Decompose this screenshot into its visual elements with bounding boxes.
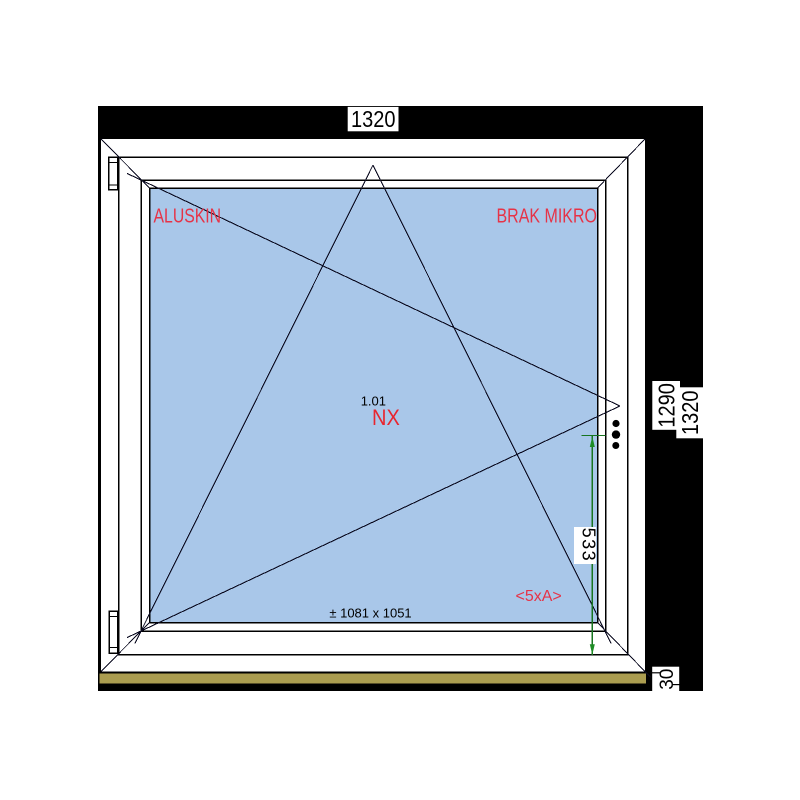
svg-text:1320: 1320 [677, 391, 704, 436]
svg-text:<5xA>: <5xA> [516, 588, 562, 605]
svg-text:1320: 1320 [351, 105, 396, 132]
svg-text:ALUSKIN: ALUSKIN [154, 205, 222, 227]
svg-text:30: 30 [657, 669, 678, 690]
svg-text:± 1081 x 1051: ± 1081 x 1051 [329, 606, 411, 621]
svg-text:BRAK MIKRO: BRAK MIKRO [497, 205, 597, 227]
svg-text:533: 533 [579, 528, 599, 563]
svg-text:1290: 1290 [653, 383, 680, 428]
svg-text:NX: NX [372, 406, 400, 430]
